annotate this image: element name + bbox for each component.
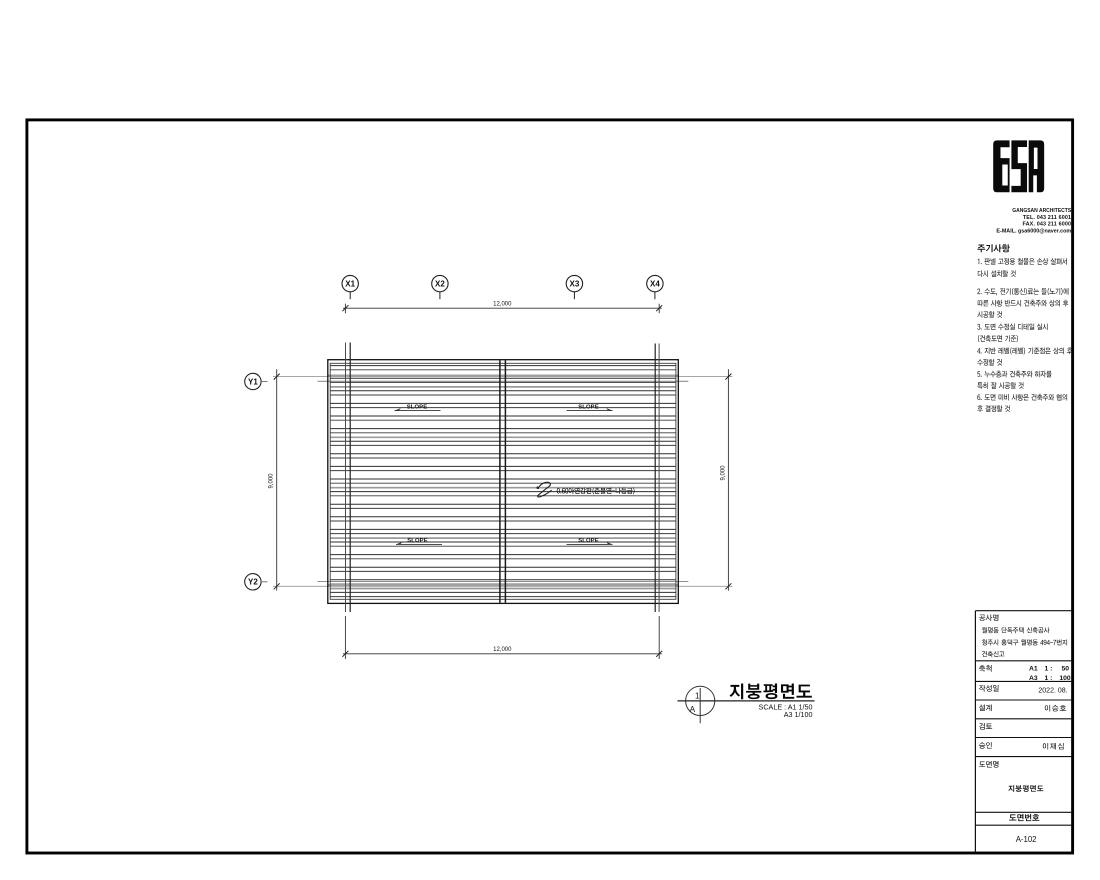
- svg-text:FAX. 043 211 6000: FAX. 043 211 6000: [1022, 222, 1071, 228]
- svg-text:X1: X1: [345, 279, 355, 288]
- svg-text:A3 1/100: A3 1/100: [784, 710, 813, 719]
- svg-text:A3: A3: [1029, 675, 1038, 682]
- svg-text:X3: X3: [570, 279, 580, 288]
- svg-text:50: 50: [1061, 666, 1069, 673]
- svg-text:9,000: 9,000: [720, 465, 726, 481]
- svg-text:100: 100: [1059, 675, 1071, 682]
- svg-text:Y2: Y2: [248, 578, 258, 587]
- svg-text:Y1: Y1: [248, 377, 258, 386]
- svg-text:TEL. 043 211 6001: TEL. 043 211 6001: [1023, 215, 1071, 221]
- svg-text:12,000: 12,000: [493, 647, 512, 653]
- svg-text:SLOPE: SLOPE: [407, 404, 427, 410]
- svg-text:A1: A1: [1029, 666, 1038, 673]
- svg-text:X4: X4: [650, 279, 660, 288]
- svg-text:SLOPE: SLOPE: [578, 538, 598, 544]
- svg-text:A: A: [690, 705, 696, 714]
- svg-text:12,000: 12,000: [493, 302, 512, 308]
- svg-text:SLOPE: SLOPE: [407, 538, 427, 544]
- svg-text:1 :: 1 :: [1045, 666, 1053, 673]
- svg-text:GANGSAN ARCHITECTS: GANGSAN ARCHITECTS: [1012, 208, 1072, 214]
- svg-text:1: 1: [695, 692, 700, 701]
- svg-text:1 :: 1 :: [1045, 675, 1053, 682]
- svg-text:2022. 08.: 2022. 08.: [1038, 687, 1067, 694]
- svg-text:E-MAIL. gsa6000@naver.com: E-MAIL. gsa6000@naver.com: [996, 228, 1071, 234]
- svg-text:X2: X2: [435, 279, 445, 288]
- svg-text:SLOPE: SLOPE: [578, 404, 598, 410]
- svg-text:A-102: A-102: [1016, 835, 1037, 844]
- svg-text:9,000: 9,000: [269, 473, 275, 489]
